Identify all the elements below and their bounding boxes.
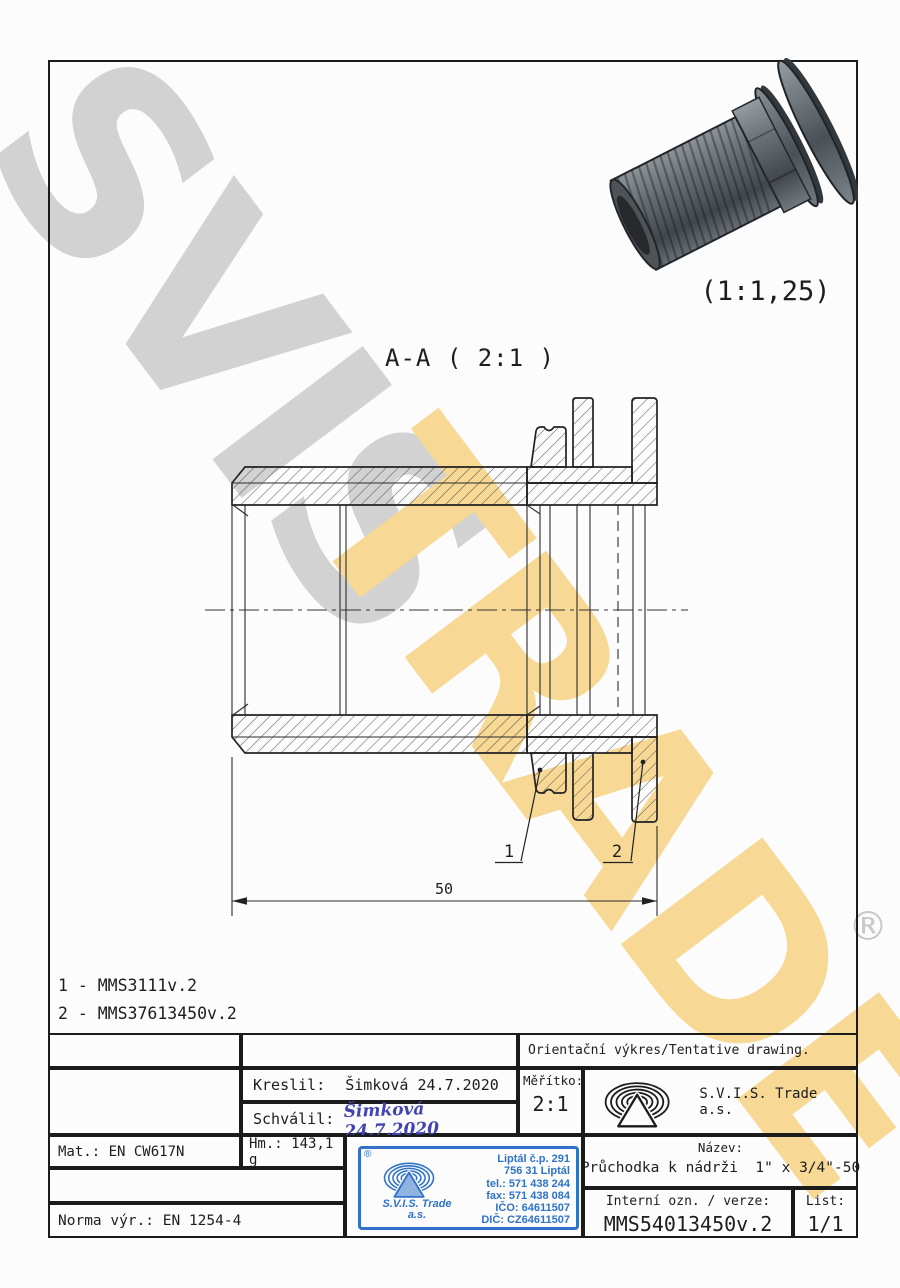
- dimension-50-text: 50: [435, 880, 453, 898]
- company-name: S.V.I.S. Trade a.s.: [699, 1086, 856, 1118]
- stamp-address-line: tel.: 571 438 244: [481, 1178, 570, 1190]
- interni-cell: Interní ozn. / verze: MMS54013450v.2: [583, 1188, 793, 1238]
- nazev-label: Název:: [698, 1140, 743, 1155]
- schvalil-row: Schválil: Šimková 24.7.2020: [241, 1102, 518, 1135]
- list-cell: List: 1/1: [793, 1188, 858, 1238]
- company-cell: S.V.I.S. Trade a.s.: [583, 1068, 858, 1135]
- tentative-drawing-note: Orientační výkres/Tentative drawing.: [518, 1033, 858, 1068]
- titleblock-empty-1: [48, 1033, 241, 1068]
- drawing-sheet: SVIS TRADE ®: [0, 0, 900, 1288]
- stamp-address-line: fax: 571 438 084: [481, 1190, 570, 1202]
- interni-label: Interní ozn. / verze:: [606, 1194, 770, 1209]
- interni-value: MMS54013450v.2: [604, 1212, 773, 1236]
- kreslil-value: Šimková 24.7.2020: [345, 1076, 499, 1094]
- stamp-logo-icon: [377, 1157, 441, 1199]
- meritko-label: Měřítko:: [523, 1073, 583, 1088]
- part-name: Průchodka k nádrži 1" x 3/4"-50: [581, 1160, 860, 1176]
- parts-list-line-2: 2 - MMS37613450v.2: [58, 1000, 237, 1028]
- titleblock-empty-4: [48, 1168, 345, 1203]
- part-3d-image: [598, 58, 858, 298]
- list-label: List:: [806, 1194, 845, 1209]
- schvalil-label: Schválil:: [253, 1110, 334, 1128]
- parts-list: 1 - MMS3111v.2 2 - MMS37613450v.2: [58, 972, 237, 1028]
- callout-leaders: [495, 760, 645, 863]
- company-stamp: ® S.V.I.S. Trade a.s. Liptál č.p. 291 75…: [358, 1146, 579, 1230]
- parts-list-line-1: 1 - MMS3111v.2: [58, 972, 237, 1000]
- list-value: 1/1: [807, 1212, 843, 1236]
- callout-1-label: 1: [504, 842, 514, 862]
- stamp-address-line: DIČ: CZ64611507: [481, 1214, 570, 1226]
- preview-scale-label: (1:1,25): [668, 276, 863, 307]
- titleblock-empty-3: [48, 1068, 241, 1135]
- weight-cell: Hm.: 143,1 g: [241, 1135, 345, 1168]
- company-logo-icon: [599, 1075, 675, 1129]
- stamp-registered-icon: ®: [364, 1149, 371, 1160]
- stamp-company-line2: a.s.: [365, 1210, 469, 1221]
- meritko-value: 2:1: [532, 1092, 568, 1116]
- titleblock-empty-2: [241, 1033, 518, 1068]
- material-cell: Mat.: EN CW617N: [48, 1135, 241, 1168]
- section-view-drawing: .hatched{fill:url(#hatch);stroke:#222;st…: [190, 330, 710, 930]
- stamp-address: Liptál č.p. 291 756 31 Liptál tel.: 571 …: [481, 1153, 570, 1227]
- norma-cell: Norma výr.: EN 1254-4: [48, 1203, 345, 1238]
- stamp-address-line: IČO: 64611507: [481, 1202, 570, 1214]
- nazev-cell: Název: Průchodka k nádrži 1" x 3/4"-50: [583, 1135, 858, 1188]
- stamp-address-line: Liptál č.p. 291: [481, 1153, 570, 1165]
- kreslil-label: Kreslil:: [253, 1076, 325, 1094]
- stamp-address-line: 756 31 Liptál: [481, 1165, 570, 1177]
- meritko-cell: Měřítko: 2:1: [518, 1068, 583, 1135]
- callout-2-label: 2: [612, 842, 622, 862]
